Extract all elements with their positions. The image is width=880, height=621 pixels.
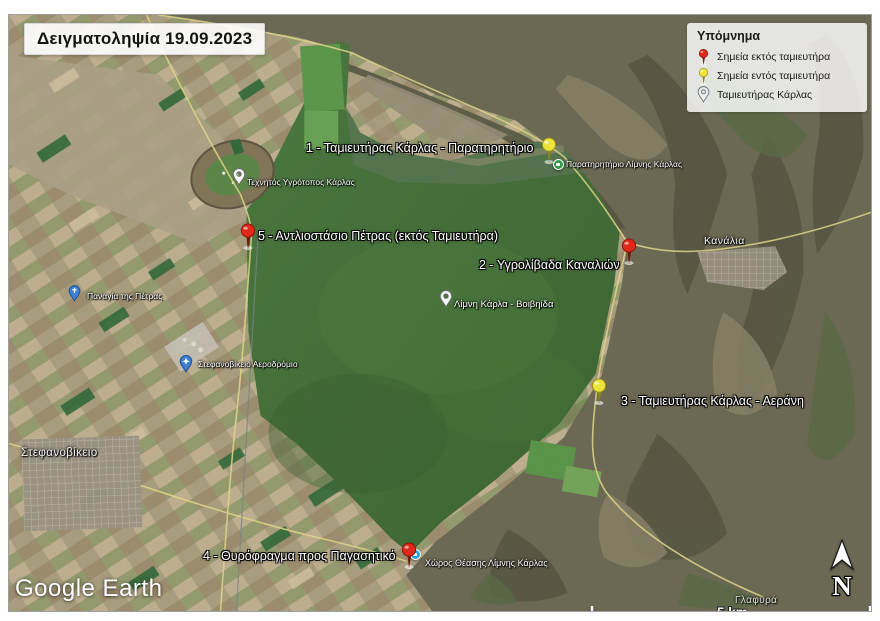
white-placemark-icon[interactable] [232, 168, 246, 186]
scale-label: 5 km [717, 605, 748, 612]
north-arrow: N [825, 537, 859, 605]
poi-label-viewing-area: Χώρος Θέασης Λίμνης Κάρλας [425, 558, 548, 568]
sample-label-2: 2 - Υγρολίβαδα Καναλιών [479, 258, 620, 272]
sample-label-1: 1 - Ταμιευτήρας Κάρλας - Παρατηρητήριο [306, 141, 533, 155]
white-placemark-icon[interactable] [439, 290, 453, 308]
yellow-pushpin-sample-3[interactable] [589, 377, 609, 405]
sample-label-5: 5 - Αντλιοστάσιο Πέτρας (εκτός Ταμιευτήρ… [258, 229, 498, 243]
sample-label-3: 3 - Ταμιευτήρας Κάρλας - Αεράνη [621, 394, 804, 408]
poi-label-airport: Στεφανοβίκειο Αεροδρόμιο [198, 359, 298, 369]
poi-label-wetland: Τεχνητός Υγρότοπος Κάρλας [247, 177, 355, 187]
google-earth-logo: Google Earth [15, 575, 162, 603]
poi-label-panagia: Παναγία της Πέτρας [87, 291, 162, 301]
legend-item-reservoir: Ταμιευτήρας Κάρλας [697, 85, 855, 104]
north-label: N [832, 571, 852, 601]
legend-item-inside: Σημεία εντός ταμιευτήρα [697, 66, 855, 85]
gray-placemark-icon [697, 86, 710, 103]
legend-item-outside: Σημεία εκτός ταμιευτήρα [697, 47, 855, 66]
yellow-pushpin-sample-1[interactable] [539, 136, 559, 164]
place-label-kanalia: Κανάλια [704, 235, 745, 247]
satellite-map-canvas[interactable]: 1 - Ταμιευτήρας Κάρλας - Παρατηρητήριο 2… [8, 14, 872, 612]
blue-airport-icon[interactable] [179, 355, 193, 373]
legend-title: Υπόμνημα [697, 29, 855, 43]
legend-label: Ταμιευτήρας Κάρλας [717, 89, 812, 101]
red-pushpin-sample-4[interactable] [399, 541, 419, 569]
poi-label-paratiritirio: Παρατηρητήριο Λίμνης Κάρλας [566, 159, 682, 169]
blue-church-icon[interactable] [68, 285, 81, 302]
red-pushpin-icon [697, 48, 710, 66]
red-pushpin-sample-2[interactable] [619, 237, 639, 265]
map-title: Δειγματοληψία 19.09.2023 [37, 29, 252, 48]
place-label-stefanovikeio: Στεφανοβίκειο [21, 447, 98, 459]
legend-label: Σημεία εντός ταμιευτήρα [717, 70, 830, 82]
legend: Υπόμνημα Σημεία εκτός ταμιευτήρα Σημεία … [687, 23, 867, 112]
red-pushpin-sample-5[interactable] [238, 222, 258, 250]
map-title-box: Δειγματοληψία 19.09.2023 [24, 23, 265, 55]
legend-label: Σημεία εκτός ταμιευτήρα [717, 51, 830, 63]
poi-label-lake: Λίμνη Κάρλα - Βοιβηίδα [454, 299, 553, 310]
sample-label-4: 4 - Θυρόφραγμα προς Παγασητικό [203, 549, 396, 563]
yellow-pushpin-icon [697, 67, 710, 85]
